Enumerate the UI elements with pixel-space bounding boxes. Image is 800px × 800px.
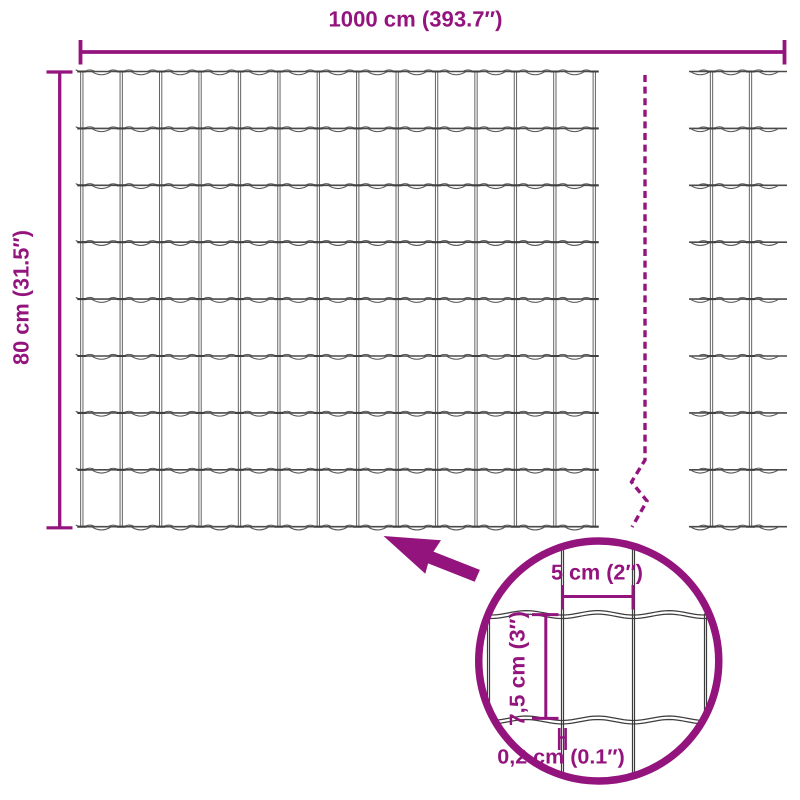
- svg-text:80 cm (31.5″): 80 cm (31.5″): [9, 230, 34, 365]
- svg-text:0,2 cm (0.1″): 0,2 cm (0.1″): [497, 746, 625, 769]
- svg-text:7,5 cm (3″): 7,5 cm (3″): [506, 611, 530, 726]
- svg-text:5 cm (2″): 5 cm (2″): [551, 561, 643, 585]
- svg-text:1000 cm (393.7″): 1000 cm (393.7″): [329, 7, 503, 32]
